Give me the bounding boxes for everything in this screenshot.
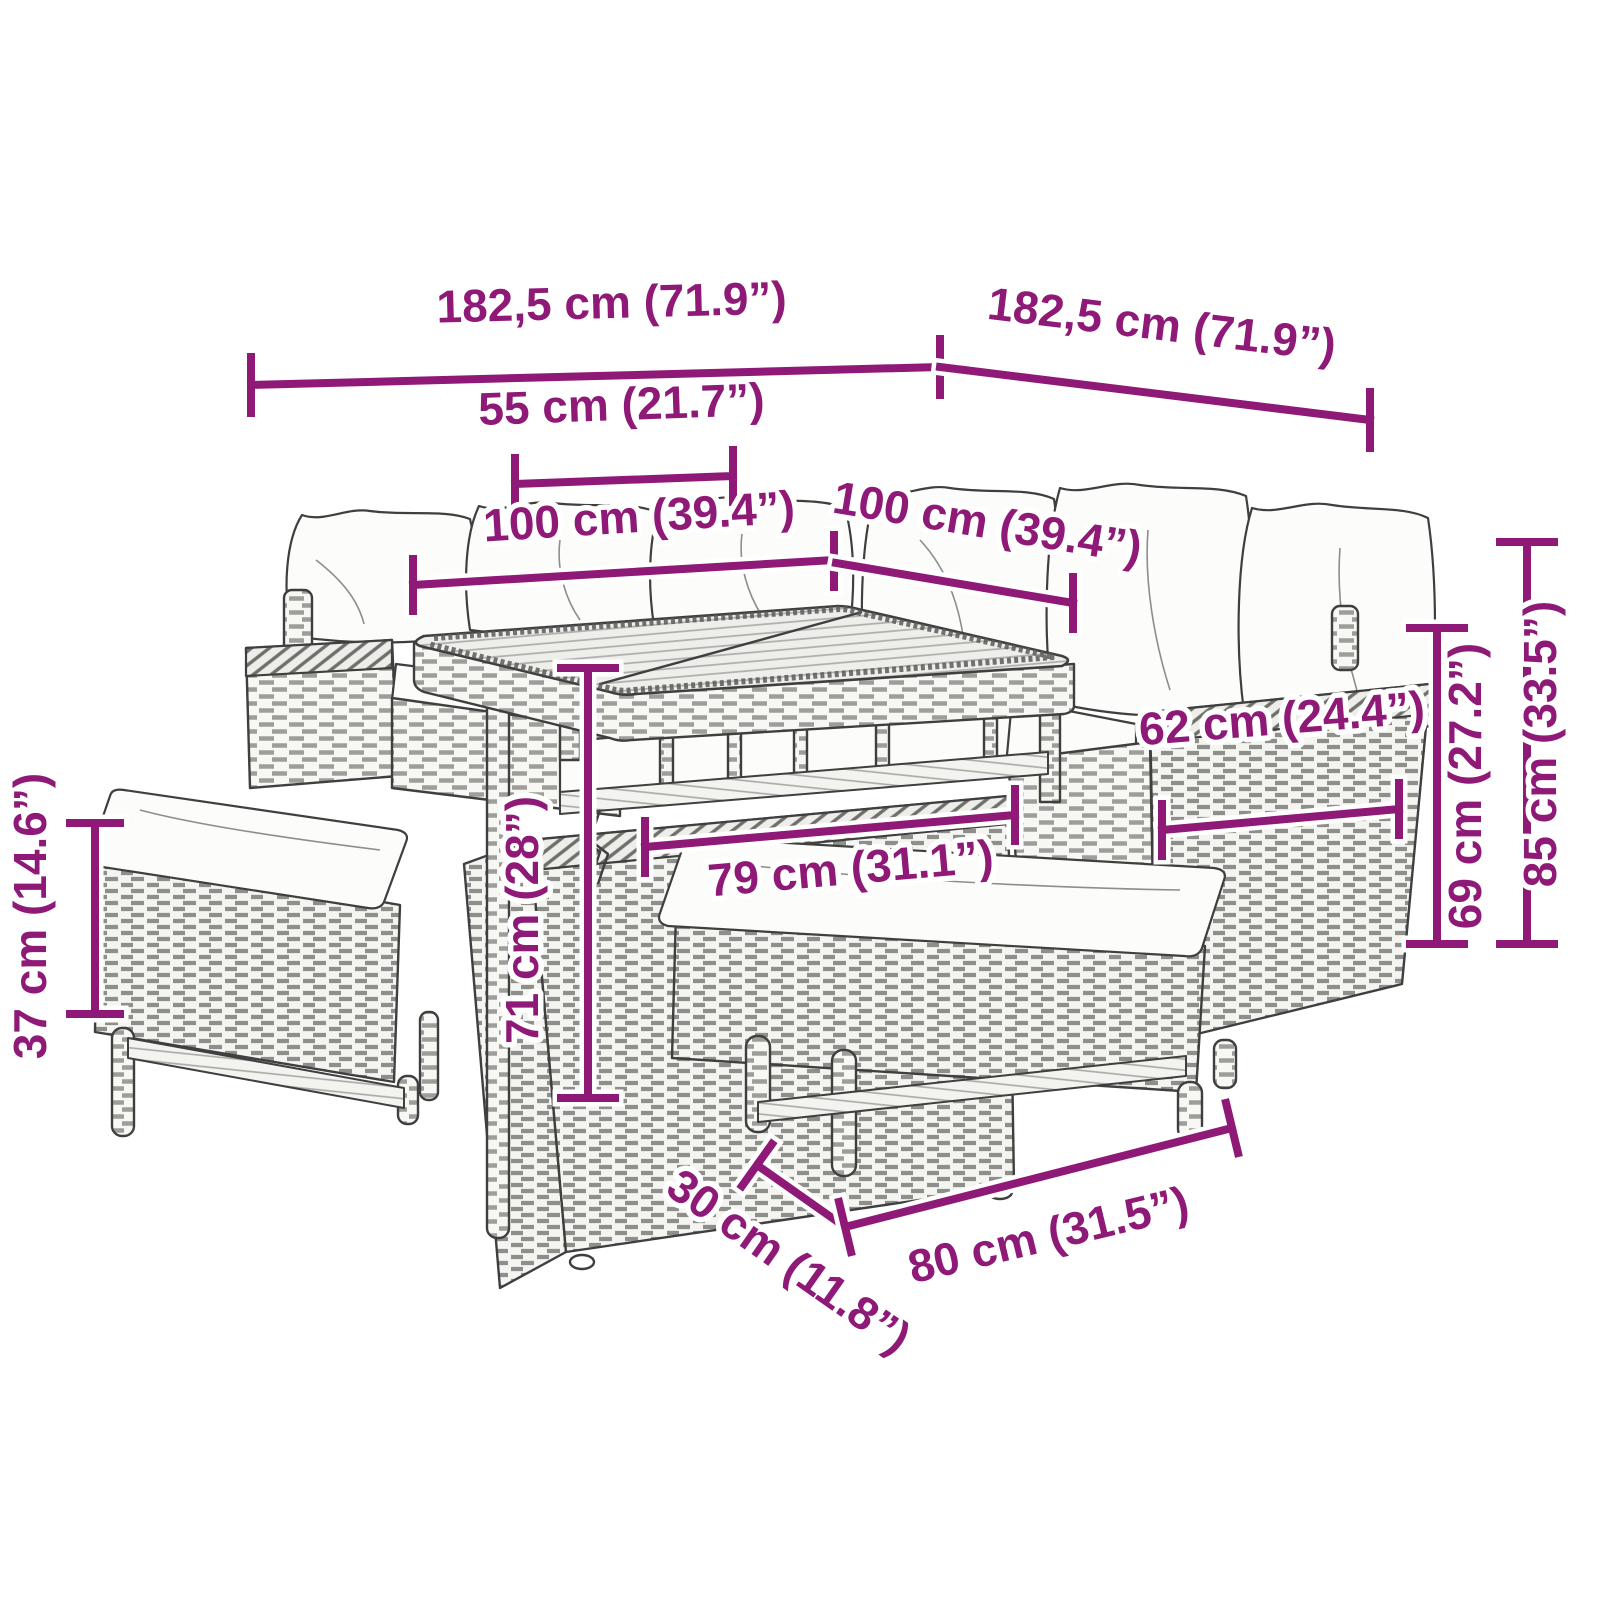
storage-box-foot [570, 1255, 594, 1269]
dim-label-width-right: 182,5 cm (71.9”) [985, 277, 1339, 371]
product-dimension-diagram: 182,5 cm (71.9”) 182,5 cm (71.9”) 55 cm … [0, 0, 1600, 1600]
dim-label-55: 55 cm (21.7”) [477, 373, 765, 435]
sofa-leg [1214, 1040, 1236, 1088]
bench-left [89, 790, 438, 1136]
dim-label-width-left: 182,5 cm (71.9”) [436, 271, 788, 332]
sofa-back-post [284, 590, 312, 652]
dim-label-71: 71 cm (28”) [496, 796, 548, 1044]
dim-label-85: 85 cm (33.5”) [1514, 601, 1566, 887]
dim-label-37: 37 cm (14.6”) [4, 773, 56, 1059]
diagram-canvas: 182,5 cm (71.9”) 182,5 cm (71.9”) 55 cm … [0, 0, 1600, 1600]
dim-label-69: 69 cm (27.2”) [1439, 643, 1491, 929]
bench-leg [420, 1012, 438, 1100]
sofa-back-post [1332, 606, 1358, 670]
